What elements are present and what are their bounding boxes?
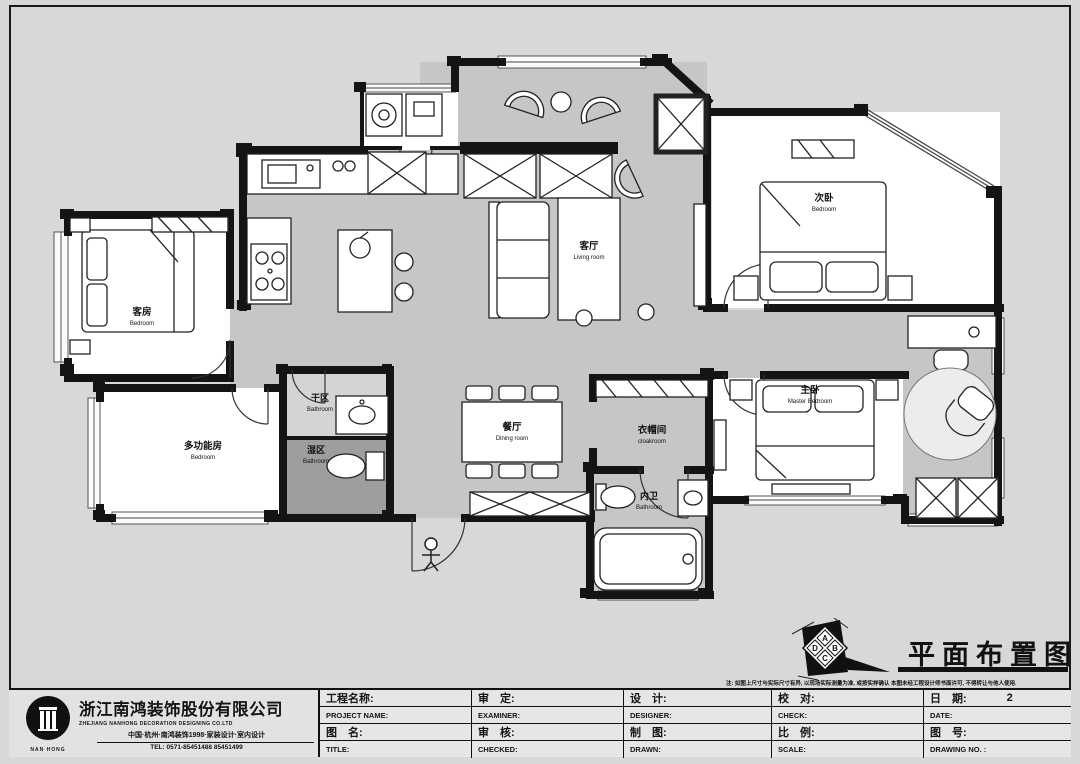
label-wet-zh: 湿区 [307,444,325,455]
field-label: 校 对: [778,690,815,706]
label-ensuite-zh: 内卫 [640,490,658,501]
tv-cabinet [694,204,706,306]
company-name-en: ZHEJIANG NANHONG DECORATION DESIGNING CO… [79,721,314,727]
toilet [327,452,384,480]
field-date-zh: 日 期:2 [924,690,1071,707]
label-multi-zh: 多功能房 [184,440,222,452]
floor-plan: 客厅 Living room 餐厅 Dining room 客房 Bedroom… [0,0,1080,632]
company-block: NAN HONG 浙江南鸿装饰股份有限公司 ZHEJIANG NANHONG D… [9,688,318,757]
company-divider [97,742,314,743]
field-scale-en: SCALE: [772,741,923,758]
title-block-col-project: 工程名称: PROJECT NAME: 图 名: TITLE: [320,690,472,758]
company-text: 浙江南鸿装饰股份有限公司 ZHEJIANG NANHONG DECORATION… [79,696,318,751]
field-label: DRAWING NO. : [930,745,986,754]
field-title-zh: 图 名: [320,724,471,741]
field-label: SCALE: [778,745,806,754]
elevator-shaft [656,96,706,152]
label-living-zh: 客厅 [578,240,599,252]
field-label: 工程名称: [326,690,374,706]
field-label: CHECKED: [478,745,518,754]
label-cloak-zh: 衣帽间 [638,424,667,436]
field-label: 审 核: [478,724,515,740]
kitchen-counter [247,152,458,194]
compass-letter-d: D [812,644,818,653]
company-tel: TEL: 0571-85451488 85451499 [79,744,314,751]
title-block-col-check: 校 对: CHECK: 比 例: SCALE: [772,690,924,758]
field-label: DESIGNER: [630,711,672,720]
label-second-zh: 次卧 [814,192,834,204]
label-master-en: Master Bedroom [788,399,832,405]
title-block-col-examiner: 审 定: EXAMINER: 审 核: CHECKED: [472,690,624,758]
field-project-name-zh: 工程名称: [320,690,471,707]
field-label: 图 号: [930,724,967,740]
bathtub [594,528,702,590]
compass-symbol: A B C D [790,618,905,682]
label-guest-zh: 客房 [131,306,151,318]
field-drawn-zh: 制 图: [624,724,771,741]
field-label: 比 例: [778,724,815,740]
compass-letter-c: C [822,654,828,663]
field-label: 审 定: [478,690,515,706]
label-dry-en: Bathroom [307,407,333,413]
entry-person-figure [422,538,440,571]
label-wet-en: Bathroom [303,459,329,465]
field-label: EXAMINER: [478,711,520,720]
cloak-wardrobe [596,380,708,397]
drawing-sheet: 客厅 Living room 餐厅 Dining room 客房 Bedroom… [0,0,1080,764]
compass-letter-b: B [832,644,838,653]
field-drawn-en: DRAWN: [624,741,771,758]
compass-letter-a: A [822,634,828,643]
field-examiner-zh: 审 定: [472,690,623,707]
field-label: DRAWN: [630,745,661,754]
label-dry-zh: 干区 [311,393,329,403]
title-block: 工程名称: PROJECT NAME: 图 名: TITLE: 审 定: EXA… [318,688,1071,757]
label-master-zh: 主卧 [800,384,820,396]
field-title-en: TITLE: [320,741,471,758]
company-logo-icon [25,695,71,741]
field-checked-zh: 审 核: [472,724,623,741]
label-ensuite-en: Bathroom [636,505,662,511]
field-examiner-en: EXAMINER: [472,707,623,724]
field-check-zh: 校 对: [772,690,923,707]
ensuite-vanity [678,480,708,516]
field-label: 图 名: [326,724,363,740]
label-dining-zh: 餐厅 [501,421,522,433]
field-label: 日 期: [930,690,967,706]
drawing-title-underline [898,667,1068,672]
field-project-name-en: PROJECT NAME: [320,707,471,724]
field-designer-en: DESIGNER: [624,707,771,724]
field-checked-en: CHECKED: [472,741,623,758]
company-tagline: 中国·杭州·南鸿装饰1998·家装设计·室内设计 [79,730,314,740]
company-name: 浙江南鸿装饰股份有限公司 [79,696,314,720]
bathroom-vanity [336,396,388,434]
label-guest-en: Bedroom [130,321,154,327]
label-dining-en: Dining room [496,436,528,442]
gas-stove [247,218,291,304]
field-label: 制 图: [630,724,667,740]
field-drawing-no-en: DRAWING NO. : [924,741,1071,758]
shoe-cabinet [470,492,590,516]
title-block-col-date: 日 期:2 DATE: 图 号: DRAWING NO. : [924,690,1071,758]
field-drawing-no-zh: 图 号: [924,724,1071,741]
sofa [489,202,549,318]
label-cloak-en: cloakroom [638,439,666,445]
company-logo: NAN HONG [17,695,79,753]
field-label: DATE: [930,711,952,720]
field-label: 设 计: [630,690,667,706]
field-date-value: 2 [1007,692,1013,704]
label-second-en: Bedroom [812,207,836,213]
company-logo-text: NAN HONG [17,747,79,753]
label-multi-en: Bedroom [191,455,215,461]
field-scale-zh: 比 例: [772,724,923,741]
field-label: PROJECT NAME: [326,711,388,720]
field-label: TITLE: [326,745,349,754]
field-date-en: DATE: [924,707,1071,724]
field-check-en: CHECK: [772,707,923,724]
title-block-col-designer: 设 计: DESIGNER: 制 图: DRAWN: [624,690,772,758]
label-living-en: Living room [573,255,604,261]
field-label: CHECK: [778,711,807,720]
field-designer-zh: 设 计: [624,690,771,707]
note-text: 注: 如图上尺寸与实际尺寸有异, 以现场实际测量为准, 或按实样确认 本图未经工… [726,679,1070,687]
